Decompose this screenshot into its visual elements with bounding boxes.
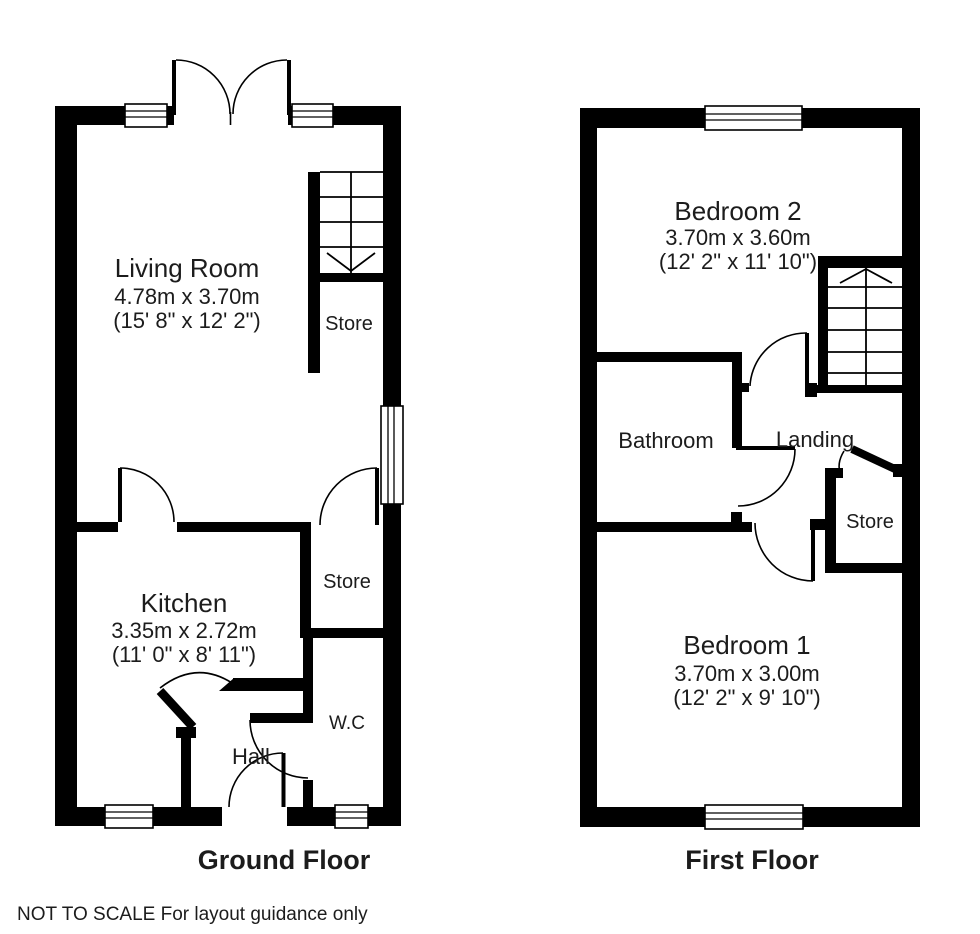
gf-window-right-icon [381, 406, 403, 504]
gf-hall-door-icon [160, 673, 232, 727]
gf-window-bottom-right-icon [335, 805, 368, 828]
ff-stairs-icon [828, 268, 902, 385]
gf-window-top-right-icon [292, 104, 333, 127]
gf-stairs-icon [320, 172, 383, 273]
ff-store-label: Store [846, 511, 894, 533]
ff-bedroom1-label: Bedroom 1 [683, 630, 810, 660]
gf-kitchen-label: Kitchen [141, 588, 228, 618]
gf-living-room-dim-imperial: (15' 8" x 12' 2") [113, 308, 261, 333]
gf-store-under-stairs-label: Store [325, 313, 373, 335]
ff-window-bottom-icon [705, 805, 803, 829]
ff-bedroom2-dim-metric: 3.70m x 3.60m [665, 225, 811, 250]
ff-bedroom1-dim-metric: 3.70m x 3.00m [674, 661, 820, 686]
ff-bedroom2-label: Bedroom 2 [674, 196, 801, 226]
floorplan-page: Living Room 4.78m x 3.70m (15' 8" x 12' … [0, 0, 980, 934]
gf-window-bottom-left-icon [105, 805, 153, 828]
scale-disclaimer: NOT TO SCALE For layout guidance only [17, 904, 368, 925]
ff-bedroom1-dim-imperial: (12' 2" x 9' 10") [673, 685, 821, 710]
ff-floor-title: First Floor [685, 845, 819, 875]
ff-bedroom1-door-icon [755, 523, 815, 581]
gf-floor-title: Ground Floor [198, 845, 371, 875]
ff-landing-label: Landing [776, 427, 854, 452]
gf-hall-label: Hall [232, 744, 270, 769]
ground-floor-plan: Living Room 4.78m x 3.70m (15' 8" x 12' … [55, 60, 403, 875]
gf-french-doors-icon [172, 60, 291, 125]
ff-window-top-icon [705, 106, 802, 130]
gf-living-room-label: Living Room [115, 253, 260, 283]
gf-wc-label: W.C [329, 713, 365, 734]
gf-store-label: Store [323, 571, 371, 593]
ff-bedroom2-dim-imperial: (12' 2" x 11' 10") [659, 249, 817, 274]
gf-store-door-icon [320, 468, 379, 525]
gf-kitchen-dim-metric: 3.35m x 2.72m [111, 618, 257, 643]
first-floor-plan: Bedroom 2 3.70m x 3.60m (12' 2" x 11' 10… [580, 106, 920, 875]
gf-living-room-dim-metric: 4.78m x 3.70m [114, 284, 260, 309]
ff-bedroom2-door-icon [750, 333, 809, 388]
ff-store-door-icon [839, 449, 897, 475]
gf-window-top-left-icon [125, 104, 167, 127]
floorplan-canvas: Living Room 4.78m x 3.70m (15' 8" x 12' … [0, 0, 980, 934]
gf-kitchen-door-icon [118, 468, 174, 522]
ff-bathroom-label: Bathroom [618, 428, 713, 453]
ff-bathroom-door-icon [736, 446, 795, 506]
gf-kitchen-dim-imperial: (11' 0" x 8' 11") [112, 642, 256, 667]
